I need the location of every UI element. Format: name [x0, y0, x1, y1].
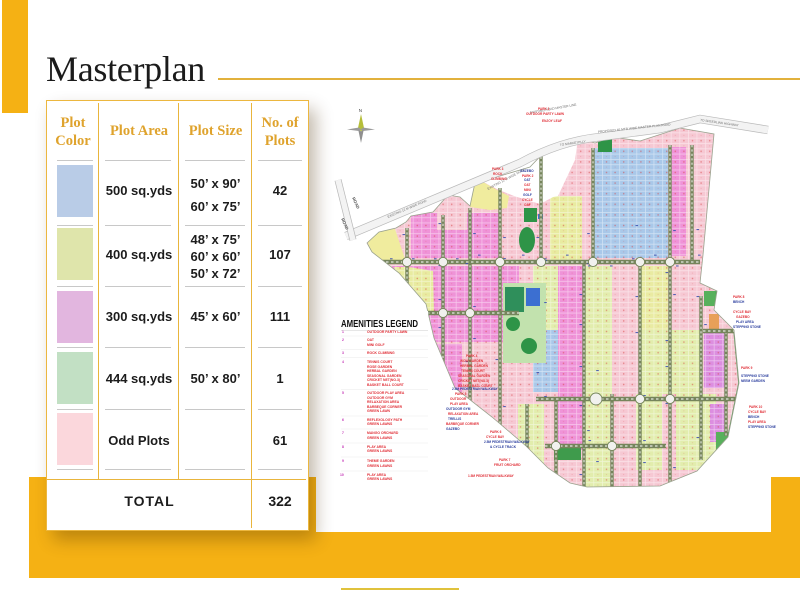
svg-text:OAT: OAT — [524, 183, 531, 187]
svg-text:8: 8 — [342, 445, 344, 449]
svg-text:PARK 4: PARK 4 — [466, 354, 478, 358]
svg-text:GREEN LAWNS: GREEN LAWNS — [367, 449, 393, 453]
svg-text:4: 4 — [342, 360, 344, 364]
svg-text:OUTDOOR PARTY LAWN: OUTDOOR PARTY LAWN — [526, 112, 565, 116]
svg-text:5: 5 — [342, 391, 344, 395]
svg-text:ENJOY LEAF: ENJOY LEAF — [542, 119, 562, 123]
svg-text:& CYCLE TRACK: & CYCLE TRACK — [490, 445, 517, 449]
svg-text:FRUIT ORCHARD: FRUIT ORCHARD — [494, 463, 521, 467]
svg-text:PARK 3: PARK 3 — [492, 167, 504, 171]
svg-text:CYCLE BAY: CYCLE BAY — [733, 310, 752, 314]
svg-text:BENCH: BENCH — [733, 300, 745, 304]
svg-text:PARK 2: PARK 2 — [538, 107, 550, 111]
svg-text:BASKET BALL COURT: BASKET BALL COURT — [367, 383, 405, 387]
svg-text:PARK 6: PARK 6 — [490, 430, 502, 434]
svg-text:PARK 7: PARK 7 — [499, 458, 511, 462]
svg-text:GREEN LAWNS: GREEN LAWNS — [367, 464, 393, 468]
svg-text:BENCH: BENCH — [748, 415, 760, 419]
svg-text:HERBAL GARDEN: HERBAL GARDEN — [367, 369, 397, 373]
svg-text:CLIMBING: CLIMBING — [491, 177, 507, 181]
svg-text:OAT: OAT — [524, 178, 531, 182]
svg-text:STEPPING STONE: STEPPING STONE — [733, 325, 761, 329]
svg-text:CRICKET NET(NO.3): CRICKET NET(NO.3) — [367, 378, 400, 382]
svg-text:PARK 10: PARK 10 — [749, 405, 762, 409]
svg-text:OUTDOOR PLAY AREA: OUTDOOR PLAY AREA — [367, 391, 405, 395]
svg-text:TENNIS COURT: TENNIS COURT — [367, 360, 393, 364]
svg-text:2: 2 — [342, 338, 344, 342]
svg-text:OUTDOOR GYM: OUTDOOR GYM — [446, 407, 471, 411]
svg-text:OAT: OAT — [367, 338, 375, 342]
svg-text:GAZEBO: GAZEBO — [520, 169, 534, 173]
svg-text:NEEM GARDEN: NEEM GARDEN — [741, 379, 766, 383]
svg-text:HERBAL GARDEN: HERBAL GARDEN — [460, 364, 489, 368]
svg-text:1.5M PEDESTRIAN WALKWAY: 1.5M PEDESTRIAN WALKWAY — [468, 474, 515, 478]
svg-text:TRELLIS: TRELLIS — [448, 417, 461, 421]
svg-text:3: 3 — [342, 351, 344, 355]
svg-text:N: N — [359, 108, 362, 113]
svg-text:9: 9 — [342, 459, 344, 463]
svg-text:ROCK: ROCK — [493, 172, 503, 176]
svg-text:STEPPING STONE: STEPPING STONE — [741, 374, 769, 378]
svg-text:CRICKET NET(NO.3): CRICKET NET(NO.3) — [458, 379, 489, 383]
svg-text:10: 10 — [340, 473, 344, 477]
svg-text:STEPPING STONE: STEPPING STONE — [748, 425, 776, 429]
svg-text:TENNIS COURT: TENNIS COURT — [461, 369, 485, 373]
svg-text:AMENITIES LEGEND: AMENITIES LEGEND — [341, 318, 418, 330]
svg-text:PARK 9: PARK 9 — [741, 366, 753, 370]
svg-text:RELAXATION AREA: RELAXATION AREA — [367, 400, 400, 404]
svg-text:GREEN LAWNS: GREEN LAWNS — [367, 422, 393, 426]
svg-text:SEASONAL GARDEN: SEASONAL GARDEN — [458, 374, 491, 378]
svg-text:GREEN LAWNS: GREEN LAWNS — [367, 436, 393, 440]
svg-text:GREEN LAWNS: GREEN LAWNS — [367, 477, 393, 481]
svg-text:GAZEBO: GAZEBO — [736, 315, 750, 319]
svg-text:GOLF: GOLF — [523, 193, 532, 197]
svg-text:MINI: MINI — [524, 188, 531, 192]
svg-text:ROCK CLIMBING: ROCK CLIMBING — [367, 351, 395, 355]
svg-text:CYCLE BAY: CYCLE BAY — [486, 435, 505, 439]
svg-text:RELAXATION AREA: RELAXATION AREA — [448, 412, 479, 416]
svg-text:CYCLE BAY: CYCLE BAY — [748, 410, 767, 414]
svg-text:2.5M PEDESTRIAN WALKWAY: 2.5M PEDESTRIAN WALKWAY — [484, 440, 531, 444]
svg-text:OAF: OAF — [524, 203, 531, 207]
svg-text:PLAY AREA: PLAY AREA — [736, 320, 755, 324]
svg-text:BARBEQUE CORNER: BARBEQUE CORNER — [446, 422, 480, 426]
svg-text:1: 1 — [342, 330, 344, 334]
svg-text:2.5M PEDESTRIAN WALKWAY: 2.5M PEDESTRIAN WALKWAY — [452, 387, 499, 391]
svg-text:MANGO ORCHARD: MANGO ORCHARD — [367, 431, 399, 435]
svg-text:PARK 8: PARK 8 — [733, 295, 745, 299]
svg-text:CYCLE: CYCLE — [522, 198, 533, 202]
svg-text:OUTDOOR PARTY LAWN: OUTDOOR PARTY LAWN — [367, 330, 408, 334]
svg-text:GAZEBO: GAZEBO — [446, 427, 460, 431]
svg-text:THEME GARDEN: THEME GARDEN — [367, 459, 395, 463]
svg-text:MINI GOLF: MINI GOLF — [367, 343, 385, 347]
svg-text:PARK 5: PARK 5 — [455, 392, 467, 396]
svg-text:7: 7 — [342, 431, 344, 435]
svg-text:PLAY AREA: PLAY AREA — [450, 402, 469, 406]
svg-text:WOW GARDEN: WOW GARDEN — [460, 359, 484, 363]
svg-text:OUTDOOR: OUTDOOR — [450, 397, 467, 401]
svg-text:PLAY AREA: PLAY AREA — [748, 420, 767, 424]
svg-text:GREEN LAWN: GREEN LAWN — [367, 409, 391, 413]
svg-text:ROAD: ROAD — [351, 196, 361, 209]
svg-text:6: 6 — [342, 418, 344, 422]
